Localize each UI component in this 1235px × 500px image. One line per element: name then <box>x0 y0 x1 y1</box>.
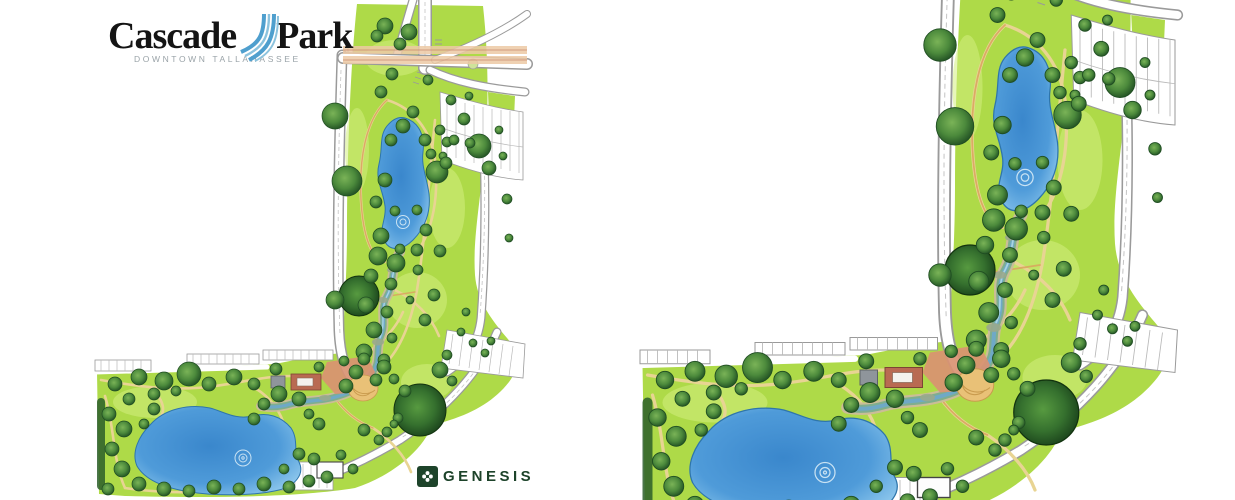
tree <box>979 303 999 323</box>
tree <box>419 134 431 146</box>
tree <box>1029 270 1039 280</box>
tree <box>385 278 397 290</box>
tree <box>303 475 315 487</box>
tree <box>370 196 382 208</box>
tree <box>435 125 445 135</box>
tree <box>988 185 1008 205</box>
tree <box>257 477 271 491</box>
tree <box>313 418 325 430</box>
screenshot-canvas: Cascade Park DOWNTOWN TALLAHASSEE GENESI… <box>0 0 1235 500</box>
tree <box>371 30 383 42</box>
tree <box>923 489 938 500</box>
tree <box>990 8 1005 23</box>
tree <box>1153 193 1163 203</box>
tree <box>969 430 984 445</box>
tree <box>364 269 378 283</box>
tree <box>381 306 393 318</box>
tree <box>412 205 422 215</box>
tree <box>1083 69 1096 82</box>
tree <box>945 345 958 358</box>
tree <box>411 244 423 256</box>
tree <box>270 363 282 375</box>
tree <box>743 353 773 383</box>
tree <box>914 353 927 366</box>
tree <box>399 385 411 397</box>
tree <box>177 362 201 386</box>
tree <box>1149 143 1162 156</box>
tree <box>969 341 984 356</box>
tree <box>1045 68 1060 83</box>
tree <box>226 369 242 385</box>
tree <box>1056 261 1071 276</box>
tree <box>132 477 146 491</box>
tree <box>1071 96 1086 111</box>
tree <box>888 460 903 475</box>
tree <box>378 173 392 187</box>
lower-pond <box>690 408 897 500</box>
tree <box>664 476 684 496</box>
tree <box>653 453 671 471</box>
tree <box>336 450 346 460</box>
tree <box>358 353 370 365</box>
tree <box>999 434 1012 447</box>
brand-title-cascade: Cascade <box>108 16 236 56</box>
tree <box>945 374 963 392</box>
tree <box>969 271 989 291</box>
tree <box>465 138 475 148</box>
tree <box>706 404 721 419</box>
tree <box>993 350 1011 368</box>
tree <box>1061 353 1081 373</box>
tree <box>860 383 880 403</box>
tree <box>1005 316 1018 329</box>
site-plan-stage <box>0 0 1235 500</box>
tree <box>105 442 119 456</box>
tree <box>715 365 738 388</box>
tree <box>1054 86 1067 99</box>
tree <box>804 361 824 381</box>
tree <box>413 265 423 275</box>
tree <box>685 361 705 381</box>
tree <box>339 379 353 393</box>
tree <box>386 68 398 80</box>
tree <box>1094 41 1109 56</box>
tree <box>481 349 489 357</box>
tree <box>377 360 391 374</box>
tree <box>1038 231 1051 244</box>
site-plan-right <box>640 0 1180 500</box>
tree <box>419 314 431 326</box>
tree <box>426 149 436 159</box>
tree <box>1005 218 1028 241</box>
tree <box>1103 73 1116 86</box>
tree <box>465 92 473 100</box>
tree <box>395 244 405 254</box>
brand-title-park: Park <box>276 16 352 56</box>
cascade-park-logo: Cascade Park DOWNTOWN TALLAHASSEE <box>108 6 352 64</box>
tree <box>1008 368 1021 381</box>
tree <box>1064 206 1079 221</box>
tree <box>123 393 135 405</box>
tree <box>706 385 721 400</box>
tree <box>139 419 149 429</box>
tree <box>446 95 456 105</box>
tree <box>233 483 245 495</box>
tree <box>304 409 314 419</box>
tree <box>502 194 512 204</box>
tree <box>321 471 333 483</box>
tree <box>308 453 320 465</box>
site-plan-left <box>95 0 527 497</box>
tree <box>279 464 289 474</box>
genesis-logo: GENESIS <box>417 466 534 487</box>
tree <box>1079 19 1092 32</box>
tree <box>505 234 513 242</box>
tree <box>314 362 324 372</box>
tree <box>258 398 270 410</box>
tree <box>956 480 969 493</box>
tree <box>1003 68 1018 83</box>
tree <box>831 373 846 388</box>
tree <box>1145 90 1155 100</box>
tree <box>1003 248 1018 263</box>
tree <box>1020 381 1035 396</box>
tree <box>774 371 792 389</box>
tree <box>499 152 507 160</box>
tree <box>913 423 928 438</box>
tree <box>976 236 994 254</box>
tree <box>870 480 883 493</box>
tree <box>248 378 260 390</box>
tree <box>1124 101 1142 119</box>
tree <box>420 224 432 236</box>
tree <box>941 463 954 476</box>
tree <box>157 482 171 496</box>
tree <box>1015 205 1028 218</box>
tree <box>1140 58 1150 68</box>
tree <box>183 485 195 497</box>
tree <box>1036 156 1049 169</box>
tree <box>1009 158 1022 171</box>
tree <box>114 461 130 477</box>
tree <box>358 424 370 436</box>
tree <box>1074 338 1087 351</box>
tree <box>369 247 387 265</box>
tree <box>929 264 952 287</box>
tree <box>1080 370 1093 383</box>
tree <box>406 296 414 304</box>
genesis-clover-icon <box>417 466 438 487</box>
tree <box>462 308 470 316</box>
tree <box>469 339 477 347</box>
tree <box>901 411 914 424</box>
tree <box>458 113 470 125</box>
tree <box>116 421 132 437</box>
tree <box>984 145 999 160</box>
tree <box>1030 33 1045 48</box>
tree <box>924 29 957 62</box>
tree <box>390 420 398 428</box>
tree <box>675 391 690 406</box>
tree <box>382 427 392 437</box>
tree <box>1035 205 1050 220</box>
tree <box>283 481 295 493</box>
tree <box>906 466 921 481</box>
tree <box>1009 425 1019 435</box>
tree <box>1046 180 1061 195</box>
tree <box>447 376 457 386</box>
tree <box>271 386 287 402</box>
tree <box>102 407 116 421</box>
tree <box>440 157 452 169</box>
tree <box>649 409 667 427</box>
tree <box>366 322 382 338</box>
tree <box>432 362 448 378</box>
tree <box>1065 56 1078 69</box>
tree <box>656 371 674 389</box>
tree <box>1130 321 1140 331</box>
tree <box>666 426 686 446</box>
tree <box>936 108 974 146</box>
tree <box>108 377 122 391</box>
tree <box>358 297 374 313</box>
tree <box>1016 49 1034 67</box>
tree <box>326 291 344 309</box>
tree <box>293 448 305 460</box>
tree <box>339 356 349 366</box>
tree <box>449 135 459 145</box>
tree <box>495 126 503 134</box>
tree <box>131 369 147 385</box>
genesis-wordmark: GENESIS <box>443 468 534 485</box>
tree <box>389 374 399 384</box>
tree <box>394 38 406 50</box>
tree <box>487 337 495 345</box>
tree <box>1123 336 1133 346</box>
tree <box>102 483 114 495</box>
tree <box>831 416 846 431</box>
tree <box>407 106 419 118</box>
tree <box>457 328 465 336</box>
tree <box>1045 293 1060 308</box>
tree <box>994 116 1012 134</box>
tree <box>390 206 400 216</box>
tree <box>148 403 160 415</box>
tree <box>387 333 397 343</box>
tree <box>1093 310 1103 320</box>
tree <box>983 209 1006 232</box>
tree <box>844 398 859 413</box>
tree <box>434 245 446 257</box>
tree <box>958 356 976 374</box>
tree <box>374 435 384 445</box>
tree <box>207 480 221 494</box>
tree <box>423 75 433 85</box>
tree <box>322 103 348 129</box>
tree <box>387 254 405 272</box>
tree <box>385 134 397 146</box>
tree <box>155 372 173 390</box>
tree <box>735 383 748 396</box>
tree <box>482 161 496 175</box>
tree <box>984 368 999 383</box>
tree <box>348 464 358 474</box>
tree <box>695 424 708 437</box>
tree <box>171 386 181 396</box>
tree <box>1099 285 1109 295</box>
tree <box>349 365 363 379</box>
tree <box>370 374 382 386</box>
waterfall-cascade-icon <box>238 12 280 62</box>
tree <box>248 413 260 425</box>
tree <box>1108 324 1118 334</box>
tree <box>886 390 904 408</box>
tree <box>292 392 306 406</box>
tree <box>998 283 1013 298</box>
tree <box>375 86 387 98</box>
tree <box>202 377 216 391</box>
tree <box>859 354 874 369</box>
tree <box>442 350 452 360</box>
tree <box>401 24 417 40</box>
tree <box>1103 15 1113 25</box>
tree <box>989 444 1002 457</box>
tree <box>396 119 410 133</box>
tree <box>373 228 389 244</box>
tree <box>332 166 362 196</box>
tree <box>148 388 160 400</box>
tree <box>428 289 440 301</box>
